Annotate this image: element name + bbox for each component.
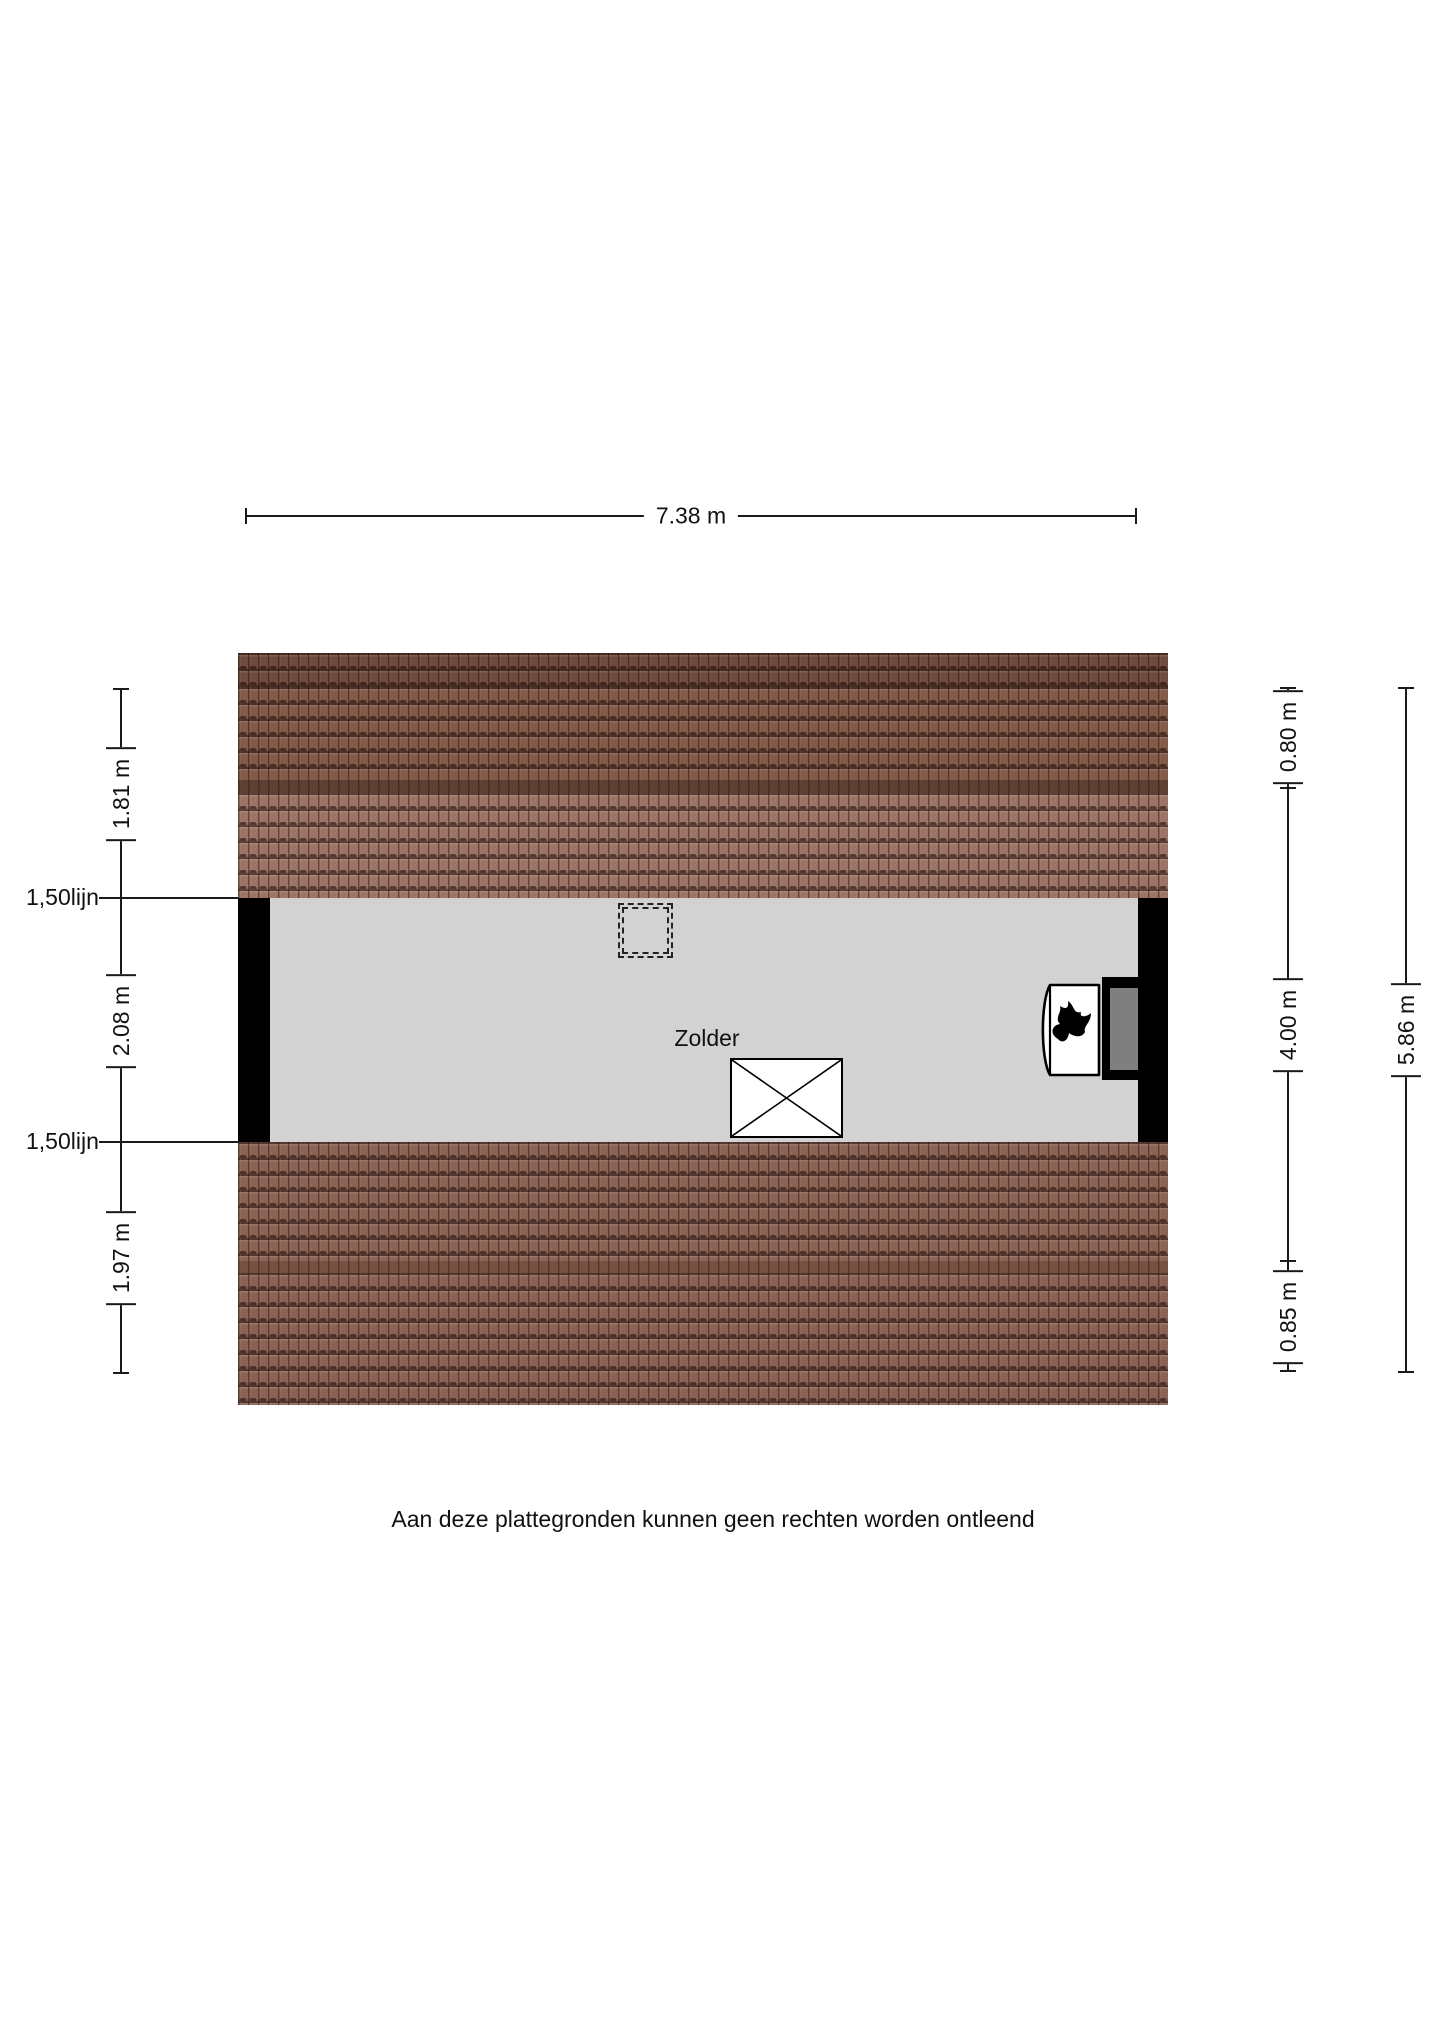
roof-tile-band [238,1142,1168,1261]
floorplan-attic: Zolder [238,653,1168,1405]
wood-stove [1038,983,1102,1077]
dimension-tick [245,508,247,524]
dashed-chimney-outline [618,903,673,958]
stairs-cross-icon [732,1060,841,1136]
roof-ridge-band [238,653,1168,687]
dashed-chimney-inner-outline [622,907,669,954]
dimension-tick [1398,687,1414,689]
attic-floor [238,898,1168,1142]
dimension-label: 2.08 m [106,973,136,1067]
stove-icon [1038,983,1102,1077]
dimension-right-roof-top: 0.80 m [1280,687,1296,787]
dimension-left-lower: 1.97 m [113,1142,129,1374]
dimension-label: 1.81 m [106,746,136,840]
roof-tile-band [238,687,1168,780]
roof-tile-band [238,793,1168,898]
roof-section-bottom [238,1142,1168,1405]
room-label: Zolder [674,1025,739,1052]
dimension-label: 7.38 m [644,503,738,530]
lijn-label-top: 1,50lijn [26,884,99,911]
disclaimer-text: Aan deze plattegronden kunnen geen recht… [391,1506,1034,1533]
roof-wallplate-stripe [238,780,1168,793]
dimension-right-roof-bottom: 0.85 m [1280,1262,1296,1372]
dimension-label: 0.80 m [1273,690,1303,784]
roof-section-top [238,653,1168,898]
lijn-label-bottom: 1,50lijn [26,1128,99,1155]
wall-left [238,898,270,1142]
floorplan-page: 7.38 m 1.81 m 2.08 m 1.97 m 1,50lijn 1,5… [0,0,1440,2036]
dimension-top-width: 7.38 m [245,501,1137,531]
roof-wallplate-stripe [238,1261,1168,1273]
dimension-tick [1135,508,1137,524]
dimension-tick [1280,687,1296,689]
wall-right [1138,898,1168,1142]
dimension-left-upper: 1.81 m [113,688,129,899]
dimension-left-middle: 2.08 m [113,898,129,1143]
hearth-flue [1110,988,1138,1070]
dimension-tick [1280,787,1296,789]
dimension-label: 1.97 m [106,1211,136,1305]
stairs-opening [730,1058,843,1138]
dimension-tick [113,688,129,690]
dimension-tick [1280,1370,1296,1372]
dimension-label: 0.85 m [1273,1270,1303,1364]
dimension-right-room: 4.00 m [1280,787,1296,1262]
dimension-tick [113,1372,129,1374]
dimension-tick [1398,1371,1414,1373]
dimension-right-total: 5.86 m [1398,687,1414,1373]
dimension-label: 4.00 m [1273,977,1303,1071]
roof-tile-band [238,1273,1168,1405]
dimension-label: 5.86 m [1391,983,1421,1077]
